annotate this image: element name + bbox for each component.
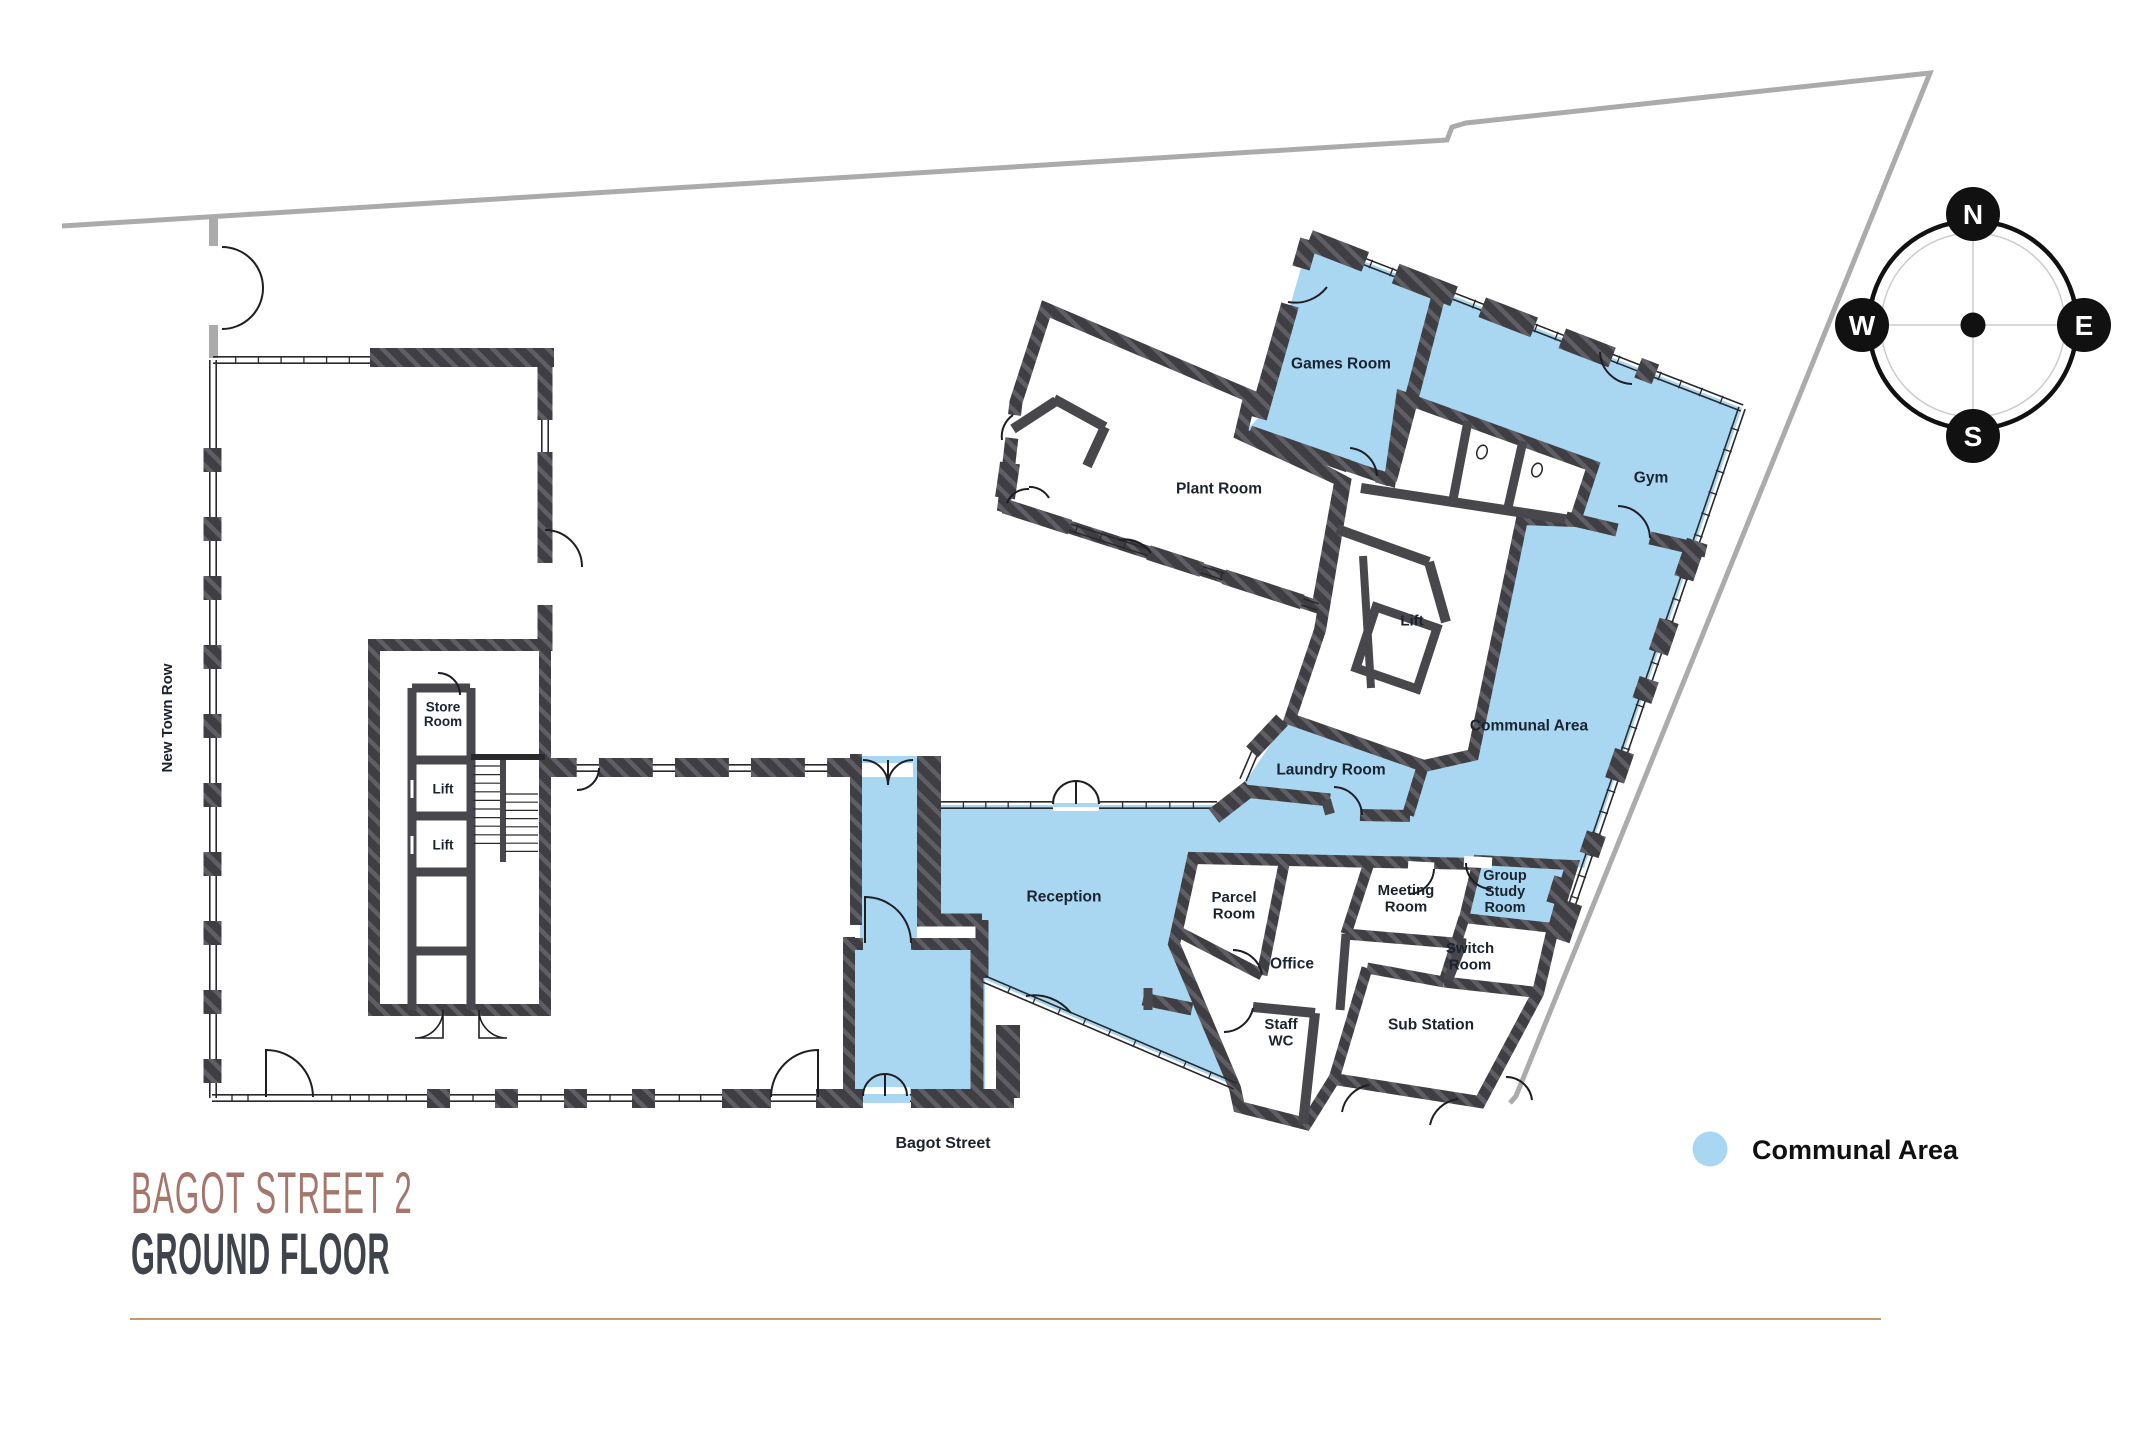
svg-text:Laundry Room: Laundry Room: [1276, 761, 1385, 778]
svg-text:Office: Office: [1270, 955, 1314, 972]
svg-text:Plant Room: Plant Room: [1176, 480, 1262, 497]
svg-text:Parcel: Parcel: [1211, 889, 1256, 906]
svg-text:Room: Room: [1385, 899, 1428, 916]
svg-text:New Town Row: New Town Row: [159, 663, 176, 772]
svg-text:N: N: [1963, 199, 1983, 230]
svg-text:Group: Group: [1483, 868, 1527, 884]
svg-text:Bagot Street: Bagot Street: [895, 1135, 991, 1152]
svg-text:Room: Room: [424, 714, 462, 729]
svg-text:Room: Room: [1484, 900, 1525, 916]
svg-text:Store: Store: [426, 699, 461, 714]
svg-text:Room: Room: [1449, 957, 1492, 974]
svg-text:W: W: [1849, 310, 1876, 341]
svg-text:Sub Station: Sub Station: [1388, 1016, 1474, 1033]
svg-text:Communal Area: Communal Area: [1470, 717, 1589, 734]
svg-text:WC: WC: [1269, 1033, 1294, 1050]
svg-text:Gym: Gym: [1634, 469, 1668, 486]
svg-text:Study: Study: [1485, 884, 1525, 900]
svg-text:Communal Area: Communal Area: [1752, 1135, 1959, 1165]
svg-text:Reception: Reception: [1027, 888, 1102, 905]
svg-text:S: S: [1964, 421, 1983, 452]
svg-text:Meeting: Meeting: [1378, 882, 1435, 899]
svg-text:Staff: Staff: [1264, 1016, 1298, 1033]
svg-text:Lift: Lift: [1400, 612, 1423, 629]
svg-text:Lift: Lift: [433, 782, 454, 797]
svg-text:BAGOT STREET 2: BAGOT STREET 2: [131, 1161, 413, 1226]
svg-text:Games Room: Games Room: [1291, 355, 1391, 372]
svg-text:Lift: Lift: [433, 838, 454, 853]
svg-text:GROUND FLOOR: GROUND FLOOR: [131, 1222, 390, 1287]
svg-text:Switch: Switch: [1446, 940, 1494, 957]
svg-text:Room: Room: [1213, 906, 1256, 923]
svg-text:E: E: [2075, 310, 2094, 341]
